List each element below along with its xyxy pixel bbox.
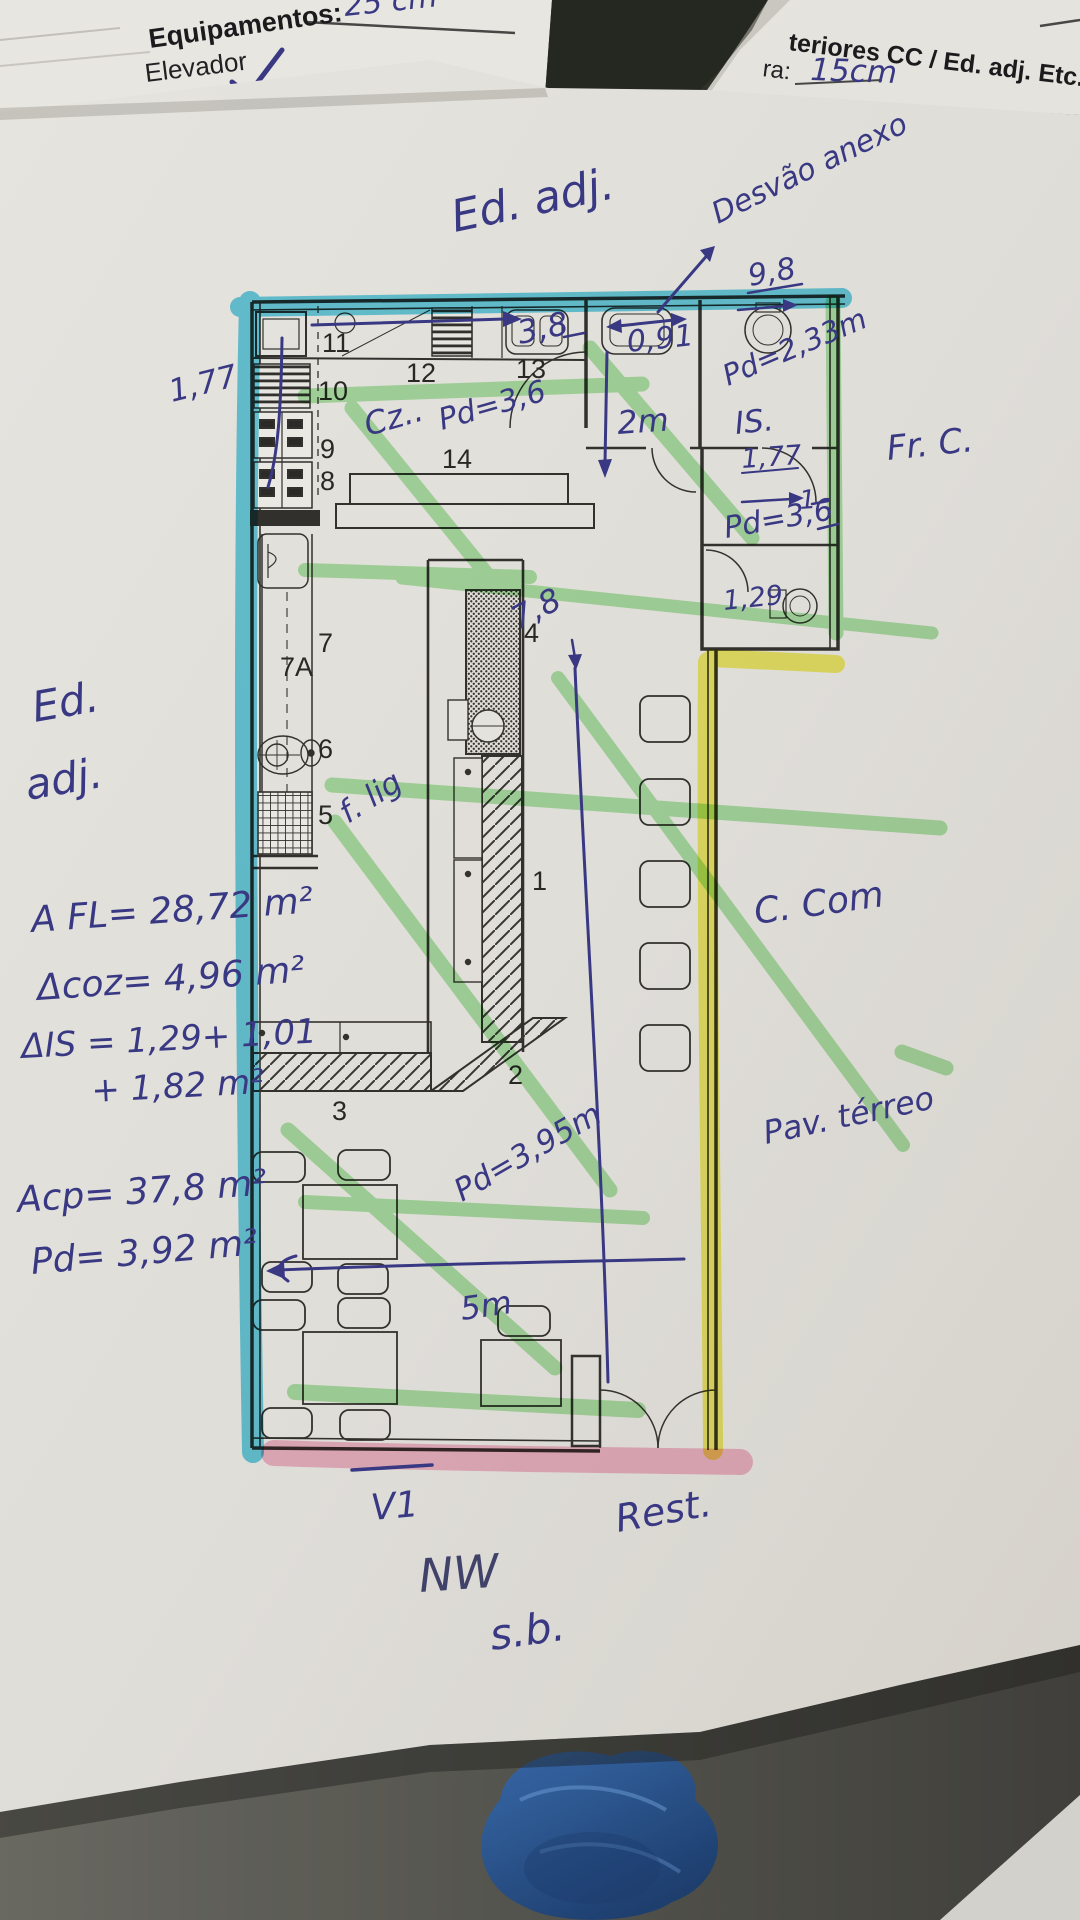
photo-of-annotated-floor-plan: 25 cm Equipamentos: Elevador Rede de Gá … xyxy=(0,0,1080,1920)
vignette xyxy=(0,0,1080,1920)
